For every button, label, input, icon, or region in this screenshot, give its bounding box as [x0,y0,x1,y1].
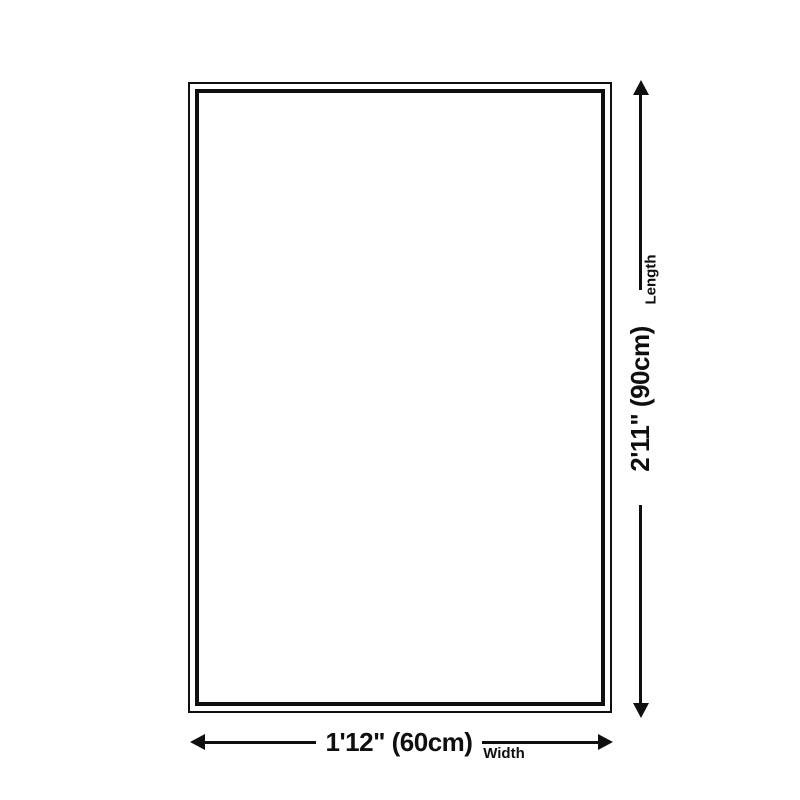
dimension-diagram: Length 2'11" (90cm) 1'12" (60cm) Width [0,0,800,800]
rug-outline-inner-border [195,89,605,706]
arrow-right-icon [598,734,613,750]
rug-outline-outer-border [188,82,612,713]
arrow-left-icon [190,734,205,750]
arrow-down-icon [633,703,649,718]
width-dimension-line-right [482,741,599,744]
length-dimension-value: 2'11" (90cm) [626,319,654,479]
length-dimension-line-lower [639,505,642,704]
width-dimension-line-left [204,741,316,744]
width-dimension-value: 1'12" (60cm) [319,728,479,756]
width-axis-label: Width [482,745,526,762]
length-axis-label: Length [643,250,660,310]
